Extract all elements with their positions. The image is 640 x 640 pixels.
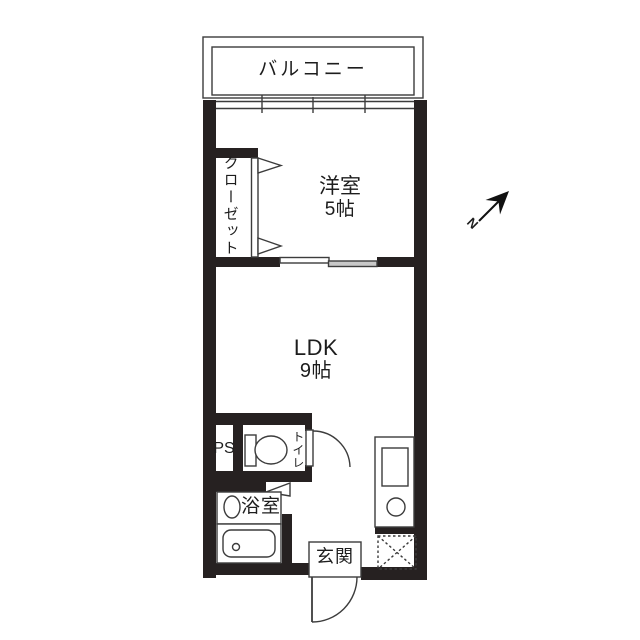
entrance-door-arc — [312, 577, 357, 622]
western-room-size: 5帖 — [319, 199, 361, 221]
ldk-name: LDK — [294, 335, 338, 360]
ps-label: PS — [213, 440, 234, 458]
toilet-label: トイレ — [290, 431, 304, 470]
closet-door-panel — [252, 158, 259, 257]
entrance-label: 玄関 — [316, 547, 354, 568]
ldk-size: 9帖 — [294, 360, 338, 383]
wall-bath-top — [203, 482, 266, 492]
toilet-door-arc — [313, 431, 350, 467]
floor-plan-drawing — [0, 0, 640, 640]
wall-bath-right — [282, 514, 292, 565]
wall-room-divider-right — [377, 257, 427, 267]
bathtub-inner — [223, 530, 275, 557]
toilet-door-leaf — [306, 430, 313, 466]
wall-toilet-top — [203, 413, 312, 425]
wall-right — [414, 100, 427, 578]
wall-kitchen-stub — [375, 527, 427, 534]
ldk-label: LDK 9帖 — [294, 335, 338, 383]
north-arrow — [479, 191, 509, 221]
closet-door-swing-top — [258, 158, 281, 173]
appliance-space — [378, 536, 416, 569]
wall-bottom-right — [361, 567, 427, 580]
wall-left — [203, 100, 216, 578]
closet-door-swing-bottom — [258, 238, 281, 254]
sliding-door-panel-right — [329, 261, 378, 267]
wall-room-divider-left — [203, 257, 280, 267]
wall-bottom-left — [203, 563, 309, 575]
washbasin — [224, 496, 240, 518]
western-room-name: 洋室 — [319, 175, 361, 199]
toilet-bowl — [255, 436, 287, 464]
balcony-label: バルコニー — [258, 59, 368, 81]
floor-plan: バルコニー 洋室 5帖 クローゼット LDK 9帖 PS トイレ 浴室 玄関 N — [0, 0, 640, 640]
western-room-label: 洋室 5帖 — [319, 175, 361, 221]
kitchen-sink — [382, 448, 408, 486]
wall-toilet-bottom — [203, 471, 312, 482]
bath-label: 浴室 — [241, 496, 281, 518]
sliding-door-panel-left — [280, 258, 329, 264]
closet-label: クローゼット — [221, 155, 238, 257]
